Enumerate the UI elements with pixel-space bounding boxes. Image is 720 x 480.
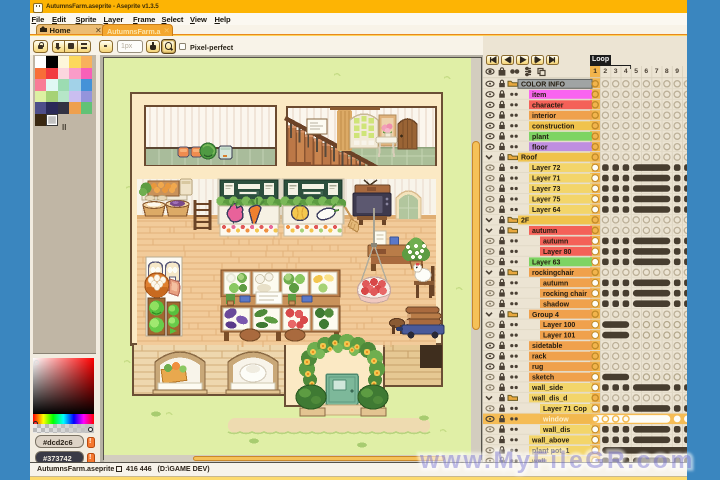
svg-text:www.MyFileGR.com: www.MyFileGR.com — [419, 447, 695, 474]
